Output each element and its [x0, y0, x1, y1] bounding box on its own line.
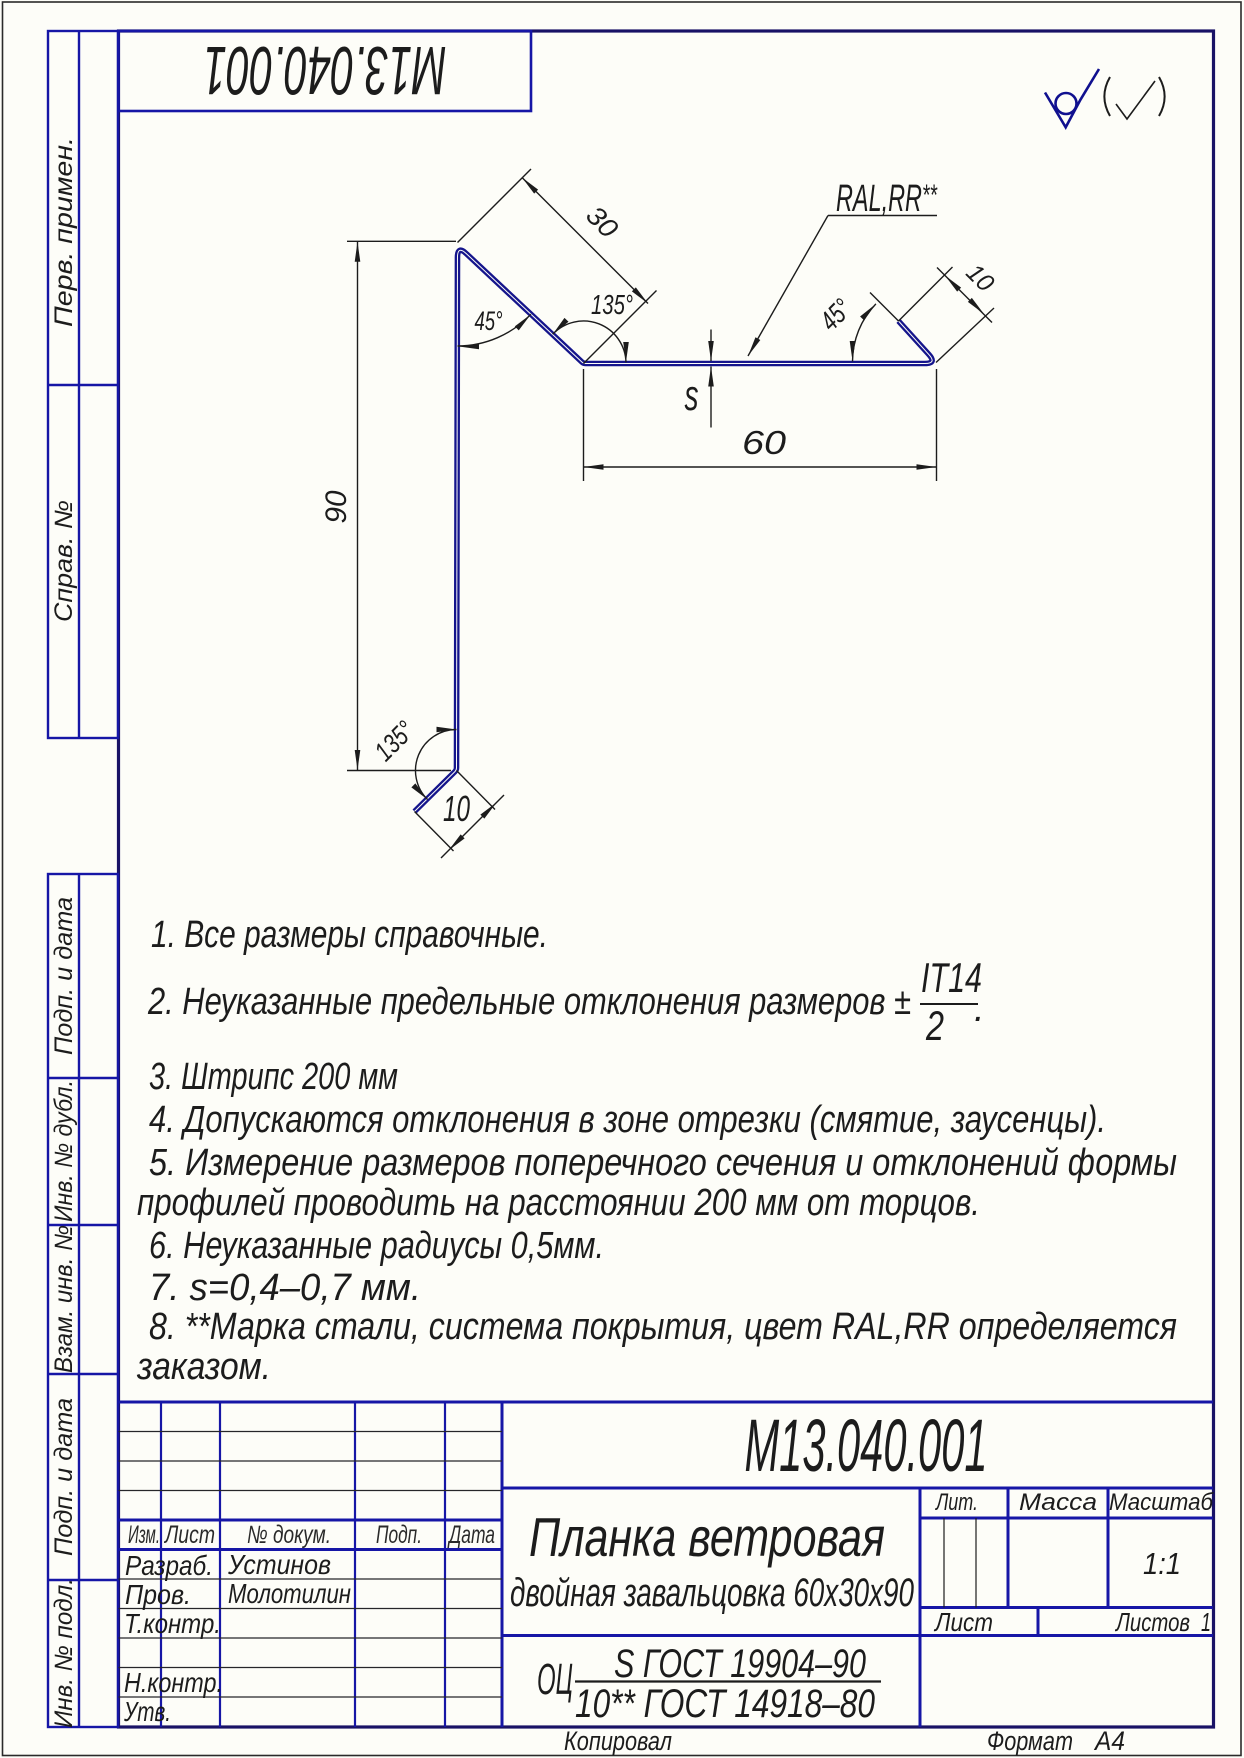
svg-text:Копировал: Копировал: [564, 1726, 672, 1756]
svg-text:М13.040.001: М13.040.001: [745, 1404, 988, 1487]
svg-text:2: 2: [925, 1002, 944, 1049]
svg-text:Подп.: Подп.: [376, 1521, 422, 1549]
svg-text:**: **: [922, 179, 938, 212]
svg-text:90: 90: [320, 490, 353, 523]
svg-text:60: 60: [742, 424, 787, 461]
svg-text:Лит.: Лит.: [935, 1489, 978, 1516]
svg-text:Взам. инв. №: Взам. инв. №: [50, 1225, 78, 1373]
svg-text:1. Все размеры справочные.: 1. Все размеры справочные.: [151, 914, 548, 956]
svg-text:Утв.: Утв.: [123, 1696, 171, 1727]
svg-text:Масштаб: Масштаб: [1109, 1489, 1214, 1516]
svg-text:4. Допускаются отклонения в з: 4. Допускаются отклонения в зоне отрезки…: [149, 1099, 1106, 1141]
svg-text:5. Измерение размеров попереч: 5. Измерение размеров поперечного сечени…: [149, 1142, 1177, 1184]
svg-text:7. s=0,4–0,7 мм.: 7. s=0,4–0,7 мм.: [149, 1267, 421, 1309]
svg-text:S ГОСТ 19904–90: S ГОСТ 19904–90: [614, 1642, 866, 1686]
svg-text:s: s: [685, 371, 699, 420]
svg-text:Разраб.: Разраб.: [125, 1550, 213, 1581]
svg-text:IT14: IT14: [921, 954, 982, 1001]
svg-text:Молотилин: Молотилин: [228, 1578, 351, 1609]
svg-text:ОЦ: ОЦ: [537, 1655, 573, 1704]
svg-text:Формат: Формат: [987, 1726, 1073, 1756]
svg-text:профилей проводить на расстоян: профилей проводить на расстоянии 200 мм …: [137, 1182, 980, 1224]
svg-text:заказом.: заказом.: [136, 1346, 271, 1388]
svg-text:10** ГОСТ 14918–80: 10** ГОСТ 14918–80: [575, 1682, 875, 1726]
svg-text:3. Штрипс 200 мм: 3. Штрипс 200 мм: [149, 1056, 398, 1098]
svg-text:Т.контр.: Т.контр.: [124, 1608, 221, 1639]
svg-text:Устинов: Устинов: [227, 1549, 331, 1580]
svg-text:Дата: Дата: [447, 1521, 495, 1549]
svg-text:Справ. №: Справ. №: [50, 500, 78, 622]
svg-text:Перв. примен.: Перв. примен.: [50, 137, 78, 327]
svg-text:Пров.: Пров.: [125, 1579, 191, 1610]
svg-text:Лист: Лист: [163, 1521, 215, 1549]
svg-text:135°: 135°: [591, 289, 633, 320]
svg-text:Масса: Масса: [1019, 1489, 1097, 1516]
svg-text:Лист: Лист: [933, 1607, 993, 1637]
svg-text:2. Неуказанные предельные отк: 2. Неуказанные предельные отклонения раз…: [147, 981, 911, 1023]
svg-text:двойная завальцовка 60х30х90: двойная завальцовка 60х30х90: [510, 1571, 914, 1615]
svg-text:№ докум.: № докум.: [247, 1521, 331, 1549]
svg-text:1:1: 1:1: [1143, 1546, 1181, 1581]
svg-text:.: .: [974, 988, 985, 1030]
svg-text:6. Неуказанные радиусы 0,5мм.: 6. Неуказанные радиусы 0,5мм.: [149, 1225, 604, 1267]
svg-text:RAL,RR: RAL,RR: [836, 178, 922, 220]
svg-text:Инв. № дубл.: Инв. № дубл.: [50, 1080, 78, 1222]
svg-text:Подп. и дата: Подп. и дата: [50, 1398, 78, 1556]
svg-text:Н.контр.: Н.контр.: [124, 1667, 223, 1698]
svg-text:Подп. и дата: Подп. и дата: [50, 897, 78, 1055]
svg-text:8. **Марка стали, система пок: 8. **Марка стали, система покрытия, цвет…: [149, 1306, 1177, 1348]
svg-text:10: 10: [443, 788, 470, 829]
svg-text:А4: А4: [1093, 1726, 1125, 1756]
svg-text:1: 1: [1201, 1607, 1211, 1637]
svg-text:Планка ветровая: Планка ветровая: [529, 1506, 885, 1568]
svg-text:Инв. № подл.: Инв. № подл.: [50, 1578, 78, 1728]
svg-text:Изм.: Изм.: [128, 1521, 160, 1549]
svg-text:Листов: Листов: [1114, 1607, 1190, 1637]
svg-text:М13.040.001: М13.040.001: [204, 32, 447, 109]
svg-text:45°: 45°: [475, 306, 503, 336]
